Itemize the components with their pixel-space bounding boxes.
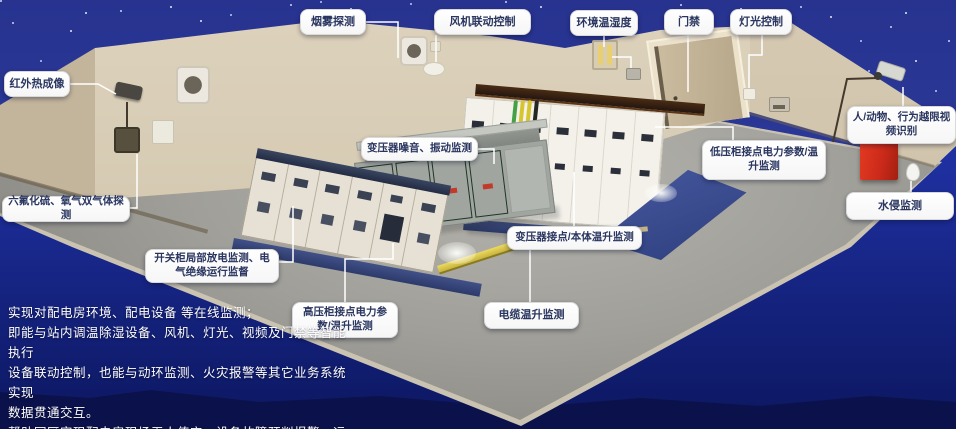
dome-sensor (423, 62, 445, 76)
callout-transformer-contact: 变压器接点/本体温升监测 (507, 226, 642, 250)
floor-light-glow (645, 184, 677, 202)
description-line: 设备联动控制，也能与动环监测、火灾报警等其它业务系统实现 (8, 363, 353, 403)
callout-transformer-noise: 变压器噪音、振动监测 (361, 137, 478, 161)
feature-description: 实现对配电房环境、配电设备 等在线监测； 即能与站内调温除湿设备、风机、灯光、视… (8, 303, 353, 429)
camera-lens (874, 72, 882, 80)
callout-lighting-control: 灯光控制 (730, 9, 792, 35)
fan-switch (430, 41, 441, 52)
exhaust-fan-back-wall (400, 36, 428, 66)
description-line: 实现对配电房环境、配电设备 等在线监测； (8, 303, 353, 323)
power-distribution-room-infographic: 烟雾探测 风机联动控制 环境温湿度 门禁 灯光控制 红外热成像 六氟化硫、氧气双… (0, 0, 956, 429)
callout-dual-gas-detection: 六氟化硫、氧气双气体探测 (2, 196, 130, 222)
callout-env-temp-humidity: 环境温湿度 (570, 10, 638, 36)
wall-control-box (152, 120, 174, 144)
description-line: 帮助园区实现配电房现场无人值守、设备故障预判报警，远程诊 (8, 423, 353, 429)
callout-fan-linkage-control: 风机联动控制 (434, 9, 531, 35)
light-fixture (592, 40, 618, 70)
description-line: 即能与站内调温除湿设备、风机、灯光、视频及门禁等智能执行 (8, 323, 353, 363)
description-line: 数据贯通交互。 (8, 403, 353, 423)
callout-cable-temp: 电缆温升监测 (484, 302, 579, 329)
exhaust-fan-left-wall (176, 66, 210, 104)
callout-video-recognition: 人/动物、行为越限视频识别 (847, 106, 956, 144)
callout-lv-cabinet: 低压柜接点电力参数/温升监测 (702, 140, 826, 180)
access-controller (769, 97, 790, 112)
callout-water-intrusion: 水侵监测 (846, 192, 954, 220)
water-sensor (906, 163, 920, 181)
callout-partial-discharge: 开关柜局部放电监测、电气绝缘运行监督 (145, 249, 279, 283)
callout-access-control: 门禁 (664, 9, 714, 35)
temp-humidity-sensor (626, 68, 641, 80)
door-handle (673, 96, 678, 101)
callout-smoke-detection: 烟雾探测 (300, 9, 366, 35)
enclosure-side-face (504, 145, 551, 213)
fire-extinguisher-cabinet (860, 142, 898, 180)
floor-light-glow (438, 242, 476, 264)
gas-sensor (114, 127, 140, 153)
stars-decoration (0, 0, 2, 2)
light-switch (743, 88, 756, 100)
callout-infrared-thermal: 红外热成像 (4, 71, 70, 97)
